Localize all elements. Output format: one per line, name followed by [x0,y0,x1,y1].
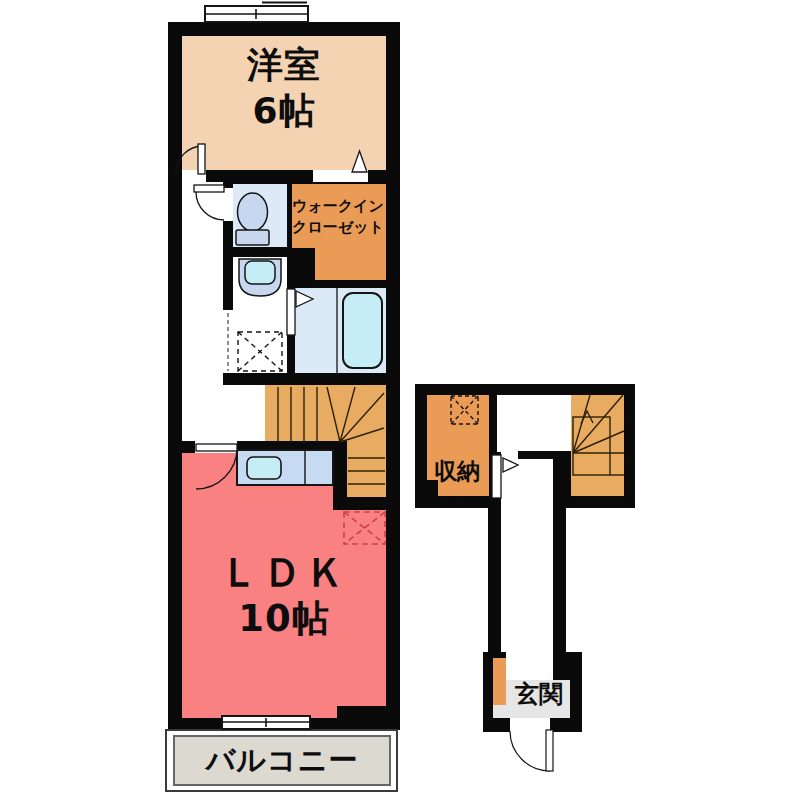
western-room-size: 6帖 [182,88,386,134]
ldk-door-opening [195,441,237,453]
corridor-right-wall [553,496,566,652]
ldk-corner-wall [337,706,400,718]
toilet-door-opening [223,188,233,221]
wic-label-line1: ウォークイン [290,196,386,217]
hallway-2f [182,182,223,441]
stairs-2f-upper-run [265,385,386,441]
front-door-opening [510,718,550,732]
shoe-cabinet [493,658,506,705]
western-room-name: 洋室 [182,42,386,88]
ldk-label: ＬＤＫ 10帖 [182,548,386,642]
room-washroom [233,257,287,373]
front-door [510,730,553,771]
room-bathroom [295,288,386,373]
linework-overlay [0,0,800,800]
stairs-2f-down-run [347,441,386,497]
entrance-corner-wall [553,652,582,680]
balcony-label: バルコニー [173,735,391,786]
ldk-name: ＬＤＫ [182,548,386,596]
stairs-1f [571,395,624,496]
entrance-corridor-end [506,652,553,680]
corridor-top-wall [518,451,571,459]
floor-plan: 洋室 6帖 ウォークイン クローゼット ＬＤＫ 10帖 バルコニー 収納 玄関 [0,0,800,800]
washroom-opening [223,310,233,373]
stair-side-wall [333,441,347,510]
stair-landing [223,385,265,441]
storage-label: 収納 [425,456,489,487]
wic-label-line2: クローゼット [290,217,386,238]
hallway-1f [497,395,571,452]
western-door-opening [182,170,206,182]
ldk-size: 10帖 [182,596,386,642]
corridor-left-wall [488,496,501,662]
room-toilet [233,184,287,247]
corridor-1f [501,452,553,652]
stair-bottom-wall [347,497,386,510]
entrance-label: 玄関 [508,678,570,710]
window-top [205,3,308,23]
wic-label: ウォークイン クローゼット [290,196,386,238]
wic-entry-opening [313,170,368,182]
room-wic-extension [315,248,386,280]
western-room-label: 洋室 6帖 [182,42,386,134]
